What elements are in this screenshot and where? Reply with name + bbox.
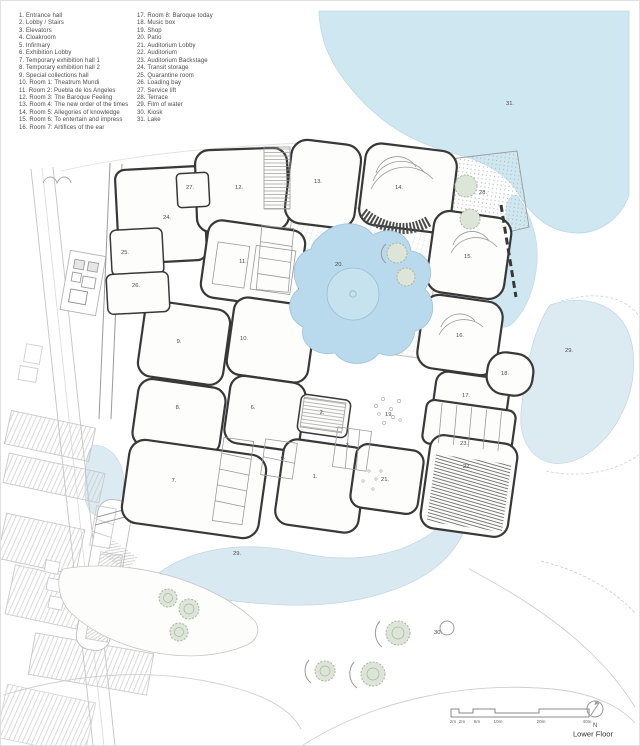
scale-tick-label: 40m bbox=[583, 719, 592, 724]
legend-item: 22. Auditorium bbox=[137, 50, 213, 57]
legend-item: 13. Room 4: The new order of the times bbox=[19, 102, 128, 109]
legend-item: 30. Kiosk bbox=[137, 110, 213, 117]
legend-item: 20. Patio bbox=[137, 35, 213, 42]
legend-item: 29. Film of water bbox=[137, 102, 213, 109]
room-number-label: 18. bbox=[501, 371, 509, 377]
legend-item: 1. Entrance hall bbox=[19, 13, 128, 20]
legend-item: 7. Temporary exhibition hall 1 bbox=[19, 58, 128, 65]
film-of-water-right bbox=[521, 296, 640, 474]
legend-item: 2. Lobby / Stairs bbox=[19, 20, 128, 27]
room-number-label: 2. bbox=[320, 410, 325, 416]
scale-tick-label: 2m bbox=[459, 719, 465, 724]
room-number-label: 1. bbox=[313, 474, 318, 480]
room-number-label: 25. bbox=[121, 250, 129, 256]
legend-item: 5. Infirmary bbox=[19, 43, 128, 50]
legend-item: 18. Music box bbox=[137, 20, 213, 27]
legend-item: 8. Temporary exhibition hall 2 bbox=[19, 65, 128, 72]
room-number-label: 17. bbox=[462, 393, 470, 399]
kiosk-30 bbox=[440, 621, 454, 635]
legend-item: 11. Room 2: Puebla de los Angeles bbox=[19, 88, 128, 95]
north-label: N bbox=[593, 723, 597, 729]
room-number-label: 24. bbox=[163, 215, 171, 221]
room-number-label: 7. bbox=[172, 478, 177, 484]
room-number-label: 11. bbox=[239, 259, 247, 265]
room-number-label: 10. bbox=[240, 336, 248, 342]
floor-title: Lower Floor bbox=[573, 730, 613, 739]
room-number-label: 29. bbox=[565, 348, 573, 354]
room-number-label: 6. bbox=[251, 405, 256, 411]
scale-tick-label: 6m bbox=[474, 719, 480, 724]
legend-column-2: 17. Room 8: Baroque today18. Music box19… bbox=[137, 13, 213, 125]
room-number-label: 22. bbox=[463, 464, 471, 470]
room-25-quarantine bbox=[110, 228, 164, 277]
room-number-label: 12. bbox=[235, 185, 243, 191]
room-number-label: 29. bbox=[233, 551, 241, 557]
room-number-label: 28. bbox=[479, 190, 487, 196]
legend-item: 17. Room 8: Baroque today bbox=[137, 13, 213, 20]
legend-item: 6. Exhibition Lobby bbox=[19, 50, 128, 57]
legend-item: 10. Room 1: Theatrum Mundi bbox=[19, 80, 128, 87]
room-13 bbox=[283, 138, 363, 230]
legend-item: 26. Loading bay bbox=[137, 80, 213, 87]
legend-item: 24. Transit storage bbox=[137, 65, 213, 72]
room-number-label: 19. bbox=[385, 412, 393, 418]
room-number-label: 13. bbox=[314, 179, 322, 185]
room-26-loading-bay bbox=[106, 271, 170, 314]
legend-item: 27. Service lift bbox=[137, 88, 213, 95]
room-7 bbox=[120, 438, 268, 540]
legend-item: 12. Room 3: The Baroque Feeling bbox=[19, 95, 128, 102]
room-number-label: 3. bbox=[346, 443, 351, 449]
legend-column-1: 1. Entrance hall2. Lobby / Stairs3. Elev… bbox=[19, 13, 128, 132]
legend-item: 3. Elevators bbox=[19, 28, 128, 35]
legend-item: 14. Room 5: Allegories of knowledge bbox=[19, 110, 128, 117]
room-number-label: 4. bbox=[281, 455, 286, 461]
room-number-label: 16. bbox=[456, 333, 464, 339]
scale-tick-label: 10m bbox=[494, 719, 503, 724]
legend-item: 31. Lake bbox=[137, 117, 213, 124]
legend-item: 4. Cloakroom bbox=[19, 35, 128, 42]
room-number-label: 9. bbox=[177, 339, 182, 345]
room-number-label: 27. bbox=[186, 185, 194, 191]
room-number-label: 8. bbox=[176, 405, 181, 411]
legend-item: 23. Auditorium Backstage bbox=[137, 58, 213, 65]
room-number-label: 21. bbox=[381, 477, 389, 483]
legend-item: 19. Shop bbox=[137, 28, 213, 35]
room-number-label: 14. bbox=[395, 185, 403, 191]
scale-tick-label: 2m bbox=[450, 719, 456, 724]
room-number-label: 30. bbox=[434, 630, 442, 636]
room-number-label: 23. bbox=[460, 441, 468, 447]
room-number-label: 31. bbox=[506, 101, 514, 107]
room-number-label: 20. bbox=[335, 262, 343, 268]
scale-bar bbox=[451, 709, 589, 717]
legend-item: 9. Special collections hall bbox=[19, 73, 128, 80]
floor-plan-sheet: 1. Entrance hall2. Lobby / Stairs3. Elev… bbox=[0, 0, 640, 746]
legend-item: 15. Room 6: To entertain and impress bbox=[19, 117, 128, 124]
legend-item: 21. Auditorium Lobby bbox=[137, 43, 213, 50]
legend-item: 28. Terrace bbox=[137, 95, 213, 102]
scale-tick-label: 20m bbox=[537, 719, 546, 724]
room-number-label: 15. bbox=[464, 254, 472, 260]
legend-item: 25. Quarantine room bbox=[137, 73, 213, 80]
room-number-label: 26. bbox=[132, 283, 140, 289]
legend-item: 16. Room 7: Artifices of the ear bbox=[19, 125, 128, 132]
